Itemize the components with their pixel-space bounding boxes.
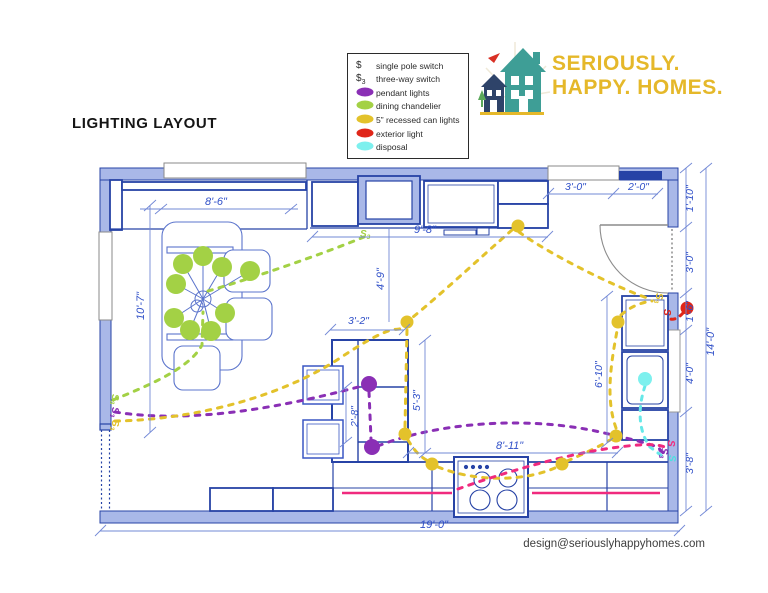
svg-text:S: S <box>661 309 672 316</box>
switch-chandelier-2: S3 <box>360 229 371 241</box>
pendant-light <box>361 376 377 392</box>
svg-text:3'-2": 3'-2" <box>348 315 370 327</box>
pendant-light <box>364 439 380 455</box>
can-light <box>426 458 439 471</box>
can-light <box>512 220 525 233</box>
switch-bank-left: S3 S3 S3 <box>108 394 120 431</box>
dining-set <box>162 222 272 390</box>
svg-text:S3: S3 <box>108 394 120 405</box>
svg-text:5'-3": 5'-3" <box>411 389 423 411</box>
svg-text:14'-0": 14'-0" <box>705 327 717 356</box>
cabinets-bottom-run <box>210 462 668 511</box>
svg-text:6'-10": 6'-10" <box>593 360 605 388</box>
svg-text:4'-9": 4'-9" <box>375 267 387 290</box>
svg-text:8'-6": 8'-6" <box>205 196 228 208</box>
range <box>454 457 528 517</box>
svg-text:10'-7": 10'-7" <box>135 291 147 320</box>
svg-text:1'-6": 1'-6" <box>684 300 696 322</box>
logo-houses-icon <box>478 38 552 122</box>
svg-text:3'-0": 3'-0" <box>565 181 587 193</box>
svg-text:3'-0": 3'-0" <box>684 251 696 273</box>
svg-text:19'-0": 19'-0" <box>420 519 449 531</box>
svg-text:S3: S3 <box>108 420 120 431</box>
svg-text:1'-10": 1'-10" <box>684 184 696 212</box>
can-light <box>556 458 569 471</box>
svg-text:S: S <box>665 440 676 447</box>
cabinets-right-run <box>622 296 668 440</box>
svg-text:S: S <box>666 455 677 462</box>
svg-text:8'-11": 8'-11" <box>496 440 524 452</box>
legend: $ single pole switch $3 three-way switch… <box>347 53 469 159</box>
legend-item-disposal: disposal <box>356 141 462 154</box>
svg-text:3'-8": 3'-8" <box>684 452 696 474</box>
can-light <box>610 430 623 443</box>
legend-item-single-pole: $ single pole switch <box>356 59 462 72</box>
contact-email: design@seriouslyhappyhomes.com <box>400 538 705 550</box>
logo-wordmark: SERIOUSLY. HAPPY. HOMES. <box>552 52 723 100</box>
can-light <box>399 428 412 441</box>
svg-text:2'-0": 2'-0" <box>627 181 650 193</box>
disposal-swatch-icon <box>356 138 376 156</box>
recessed-can-lights <box>399 220 625 471</box>
logo: SERIOUSLY. HAPPY. HOMES. <box>478 38 718 122</box>
svg-text:4'-0": 4'-0" <box>684 362 696 384</box>
svg-text:2'-8": 2'-8" <box>349 405 361 428</box>
can-light <box>612 316 625 329</box>
svg-text:9'-8": 9'-8" <box>414 224 437 236</box>
disposal-dot <box>638 372 652 386</box>
page-title: LIGHTING LAYOUT <box>72 115 217 132</box>
lighting-layout-page: S3 S3 S3 S3 S3 S S S3 S <box>0 0 768 593</box>
cased-opening <box>100 424 111 509</box>
svg-text:S3: S3 <box>108 407 120 418</box>
